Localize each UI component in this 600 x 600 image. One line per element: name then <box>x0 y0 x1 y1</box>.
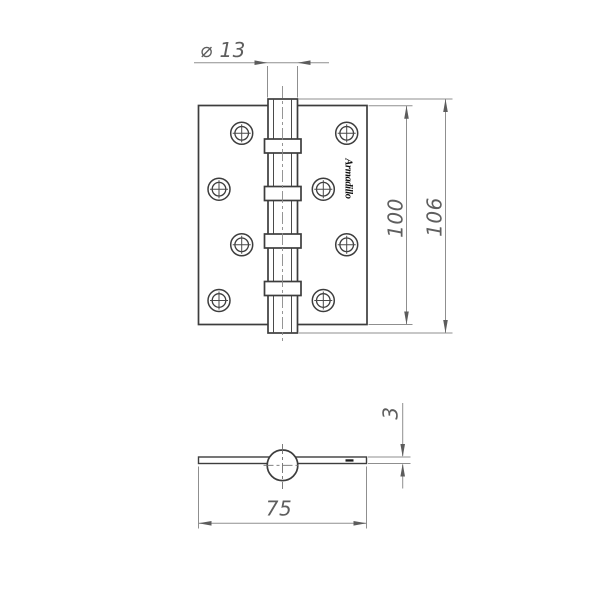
dim-barrel-diameter: ⌀ 13 <box>194 38 329 98</box>
arrowhead-icon <box>255 60 268 65</box>
arrowhead-icon <box>443 99 448 112</box>
arrowhead-icon <box>443 320 448 333</box>
drawing-sheet: Armadillo ⌀ 13 100 106 <box>0 0 600 600</box>
arrowhead-icon <box>404 106 409 119</box>
logo-edge-mark <box>346 459 354 461</box>
screw-hole <box>336 122 358 144</box>
screw-hole <box>208 290 230 312</box>
brand-logo: Armadillo <box>343 157 354 198</box>
arrowhead-icon <box>354 521 367 526</box>
arrowhead-icon <box>400 444 405 457</box>
dim-label-overall-height: 106 <box>423 197 447 237</box>
front-view: Armadillo <box>199 86 368 341</box>
dim-label-plate-height: 100 <box>384 198 408 238</box>
dim-label-plate-width: 75 <box>266 497 292 521</box>
screw-hole <box>312 290 334 312</box>
dim-plate-thickness: 3 <box>368 403 411 489</box>
arrowhead-icon <box>298 60 311 65</box>
dim-plate-height: 100 <box>369 106 413 325</box>
screw-hole <box>231 122 253 144</box>
dim-label-plate-thickness: 3 <box>379 406 403 419</box>
arrowhead-icon <box>199 521 212 526</box>
arrowhead-icon <box>400 464 405 477</box>
side-view <box>199 444 367 489</box>
hinge-barrel <box>265 86 302 341</box>
screw-hole <box>208 178 230 200</box>
screw-hole <box>231 234 253 256</box>
screw-hole <box>312 178 334 200</box>
arrowhead-icon <box>404 312 409 325</box>
screw-hole <box>336 234 358 256</box>
hinge-technical-drawing: Armadillo ⌀ 13 100 106 <box>0 0 600 600</box>
dim-label-diameter: ⌀ 13 <box>200 38 246 62</box>
